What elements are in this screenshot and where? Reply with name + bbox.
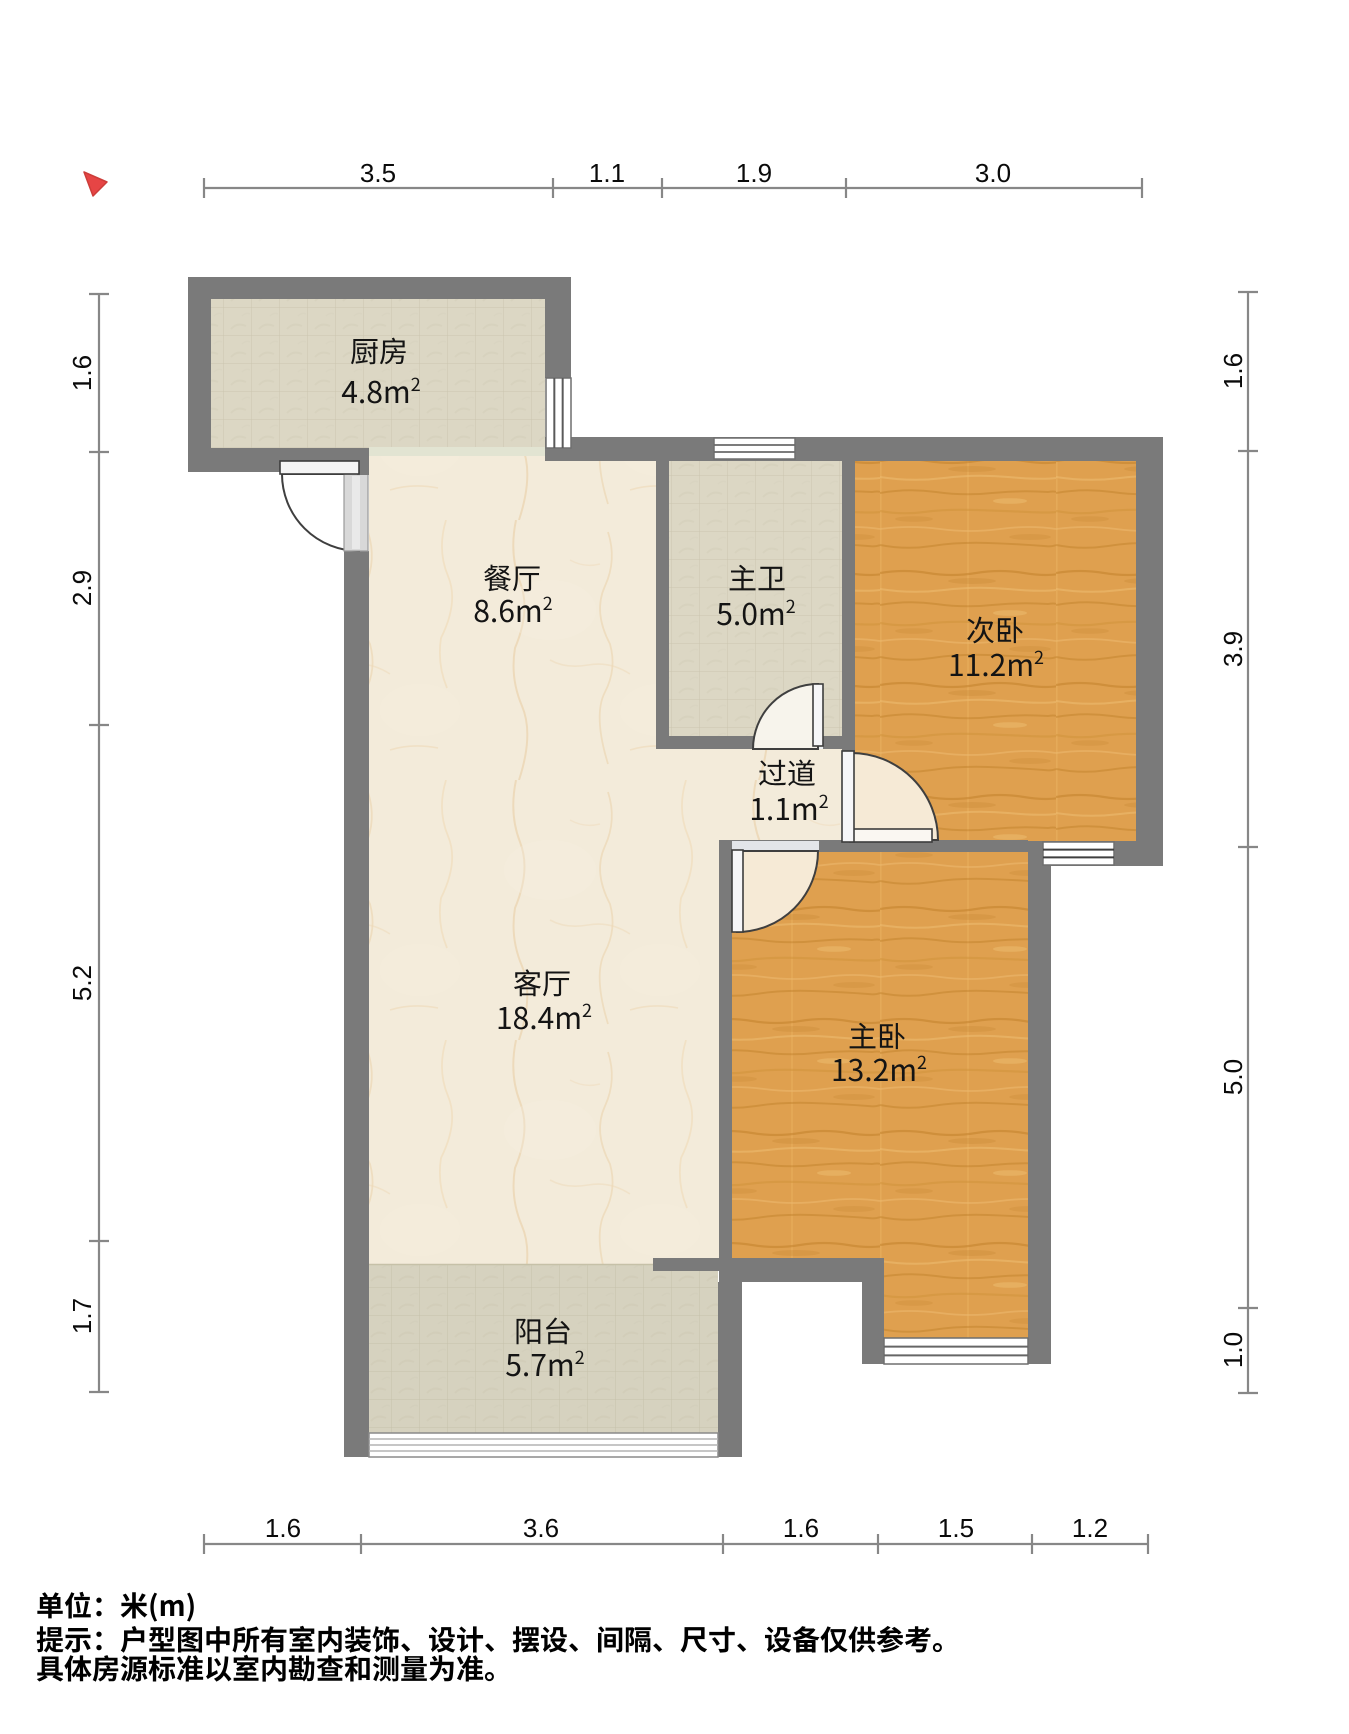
svg-text:1.6: 1.6: [783, 1513, 819, 1543]
svg-text:5.0: 5.0: [1218, 1059, 1248, 1095]
svg-text:5.2: 5.2: [67, 965, 97, 1001]
svg-text:1.1: 1.1: [589, 158, 625, 188]
svg-text:3.9: 3.9: [1218, 631, 1248, 667]
svg-text:1.5: 1.5: [938, 1513, 974, 1543]
svg-text:1.6: 1.6: [265, 1513, 301, 1543]
svg-text:3.0: 3.0: [975, 158, 1011, 188]
svg-text:1.7: 1.7: [67, 1298, 97, 1334]
svg-text:3.6: 3.6: [523, 1513, 559, 1543]
svg-text:2.9: 2.9: [67, 570, 97, 606]
svg-text:1.2: 1.2: [1072, 1513, 1108, 1543]
svg-text:3.5: 3.5: [360, 158, 396, 188]
svg-text:1.6: 1.6: [1218, 353, 1248, 389]
svg-text:1.0: 1.0: [1218, 1332, 1248, 1368]
svg-text:1.6: 1.6: [67, 355, 97, 391]
svg-text:1.9: 1.9: [736, 158, 772, 188]
